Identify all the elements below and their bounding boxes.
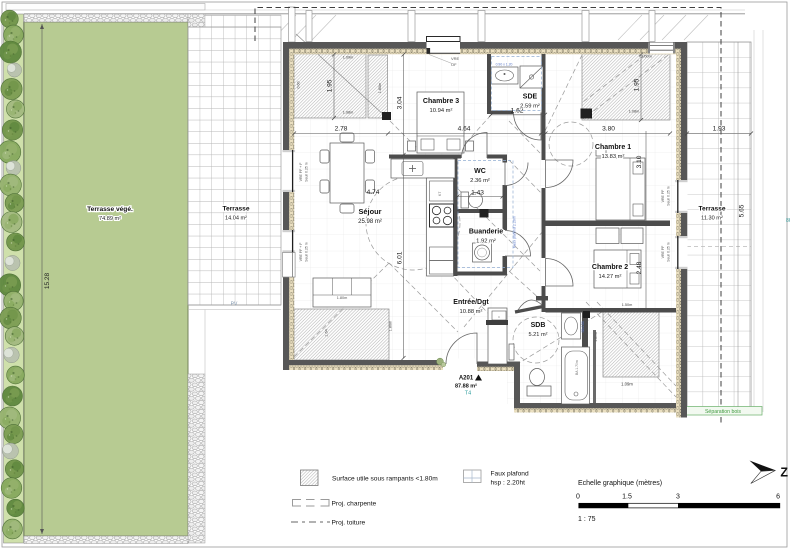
svg-text:1.93: 1.93 (713, 126, 726, 133)
svg-text:Faux plafond 2.20m: Faux plafond 2.20m (513, 216, 517, 248)
svg-text:25.98 m²: 25.98 m² (358, 219, 382, 225)
svg-text:2.59 m²: 2.59 m² (520, 104, 540, 110)
svg-text:Terrasse végé.: Terrasse végé. (87, 206, 133, 213)
svg-text:1.08m: 1.08m (629, 110, 640, 114)
svg-text:1.43: 1.43 (471, 190, 484, 197)
svg-text:Chambre 2: Chambre 2 (592, 264, 628, 271)
svg-text:Entrée/Dgt: Entrée/Dgt (453, 299, 489, 306)
svg-text:4.64: 4.64 (458, 126, 471, 133)
svg-text:1.09m: 1.09m (621, 382, 633, 387)
svg-text:1 : 75: 1 : 75 (578, 516, 596, 523)
svg-text:SB 0.60: SB 0.60 (581, 321, 585, 333)
svg-text:Surface utile sous rampants <1: Surface utile sous rampants <1.80m (332, 476, 438, 483)
svg-text:Proj. charpente: Proj. charpente (332, 501, 377, 508)
svg-text:SDE: SDE (523, 94, 538, 101)
svg-text:Terrasse: Terrasse (222, 206, 249, 213)
svg-text:Buanderie: Buanderie (469, 229, 503, 236)
svg-text:1.80m: 1.80m (389, 321, 393, 332)
svg-text:A201: A201 (459, 376, 474, 382)
svg-text:2.78: 2.78 (335, 126, 348, 133)
svg-text:14.04 m²: 14.04 m² (225, 216, 247, 222)
svg-text:1.5: 1.5 (622, 494, 632, 501)
svg-text:Chambre 3: Chambre 3 (423, 98, 459, 105)
svg-text:BA 1.70m: BA 1.70m (575, 360, 579, 375)
svg-text:Terrasse: Terrasse (698, 206, 725, 213)
svg-text:5.21 m²: 5.21 m² (529, 332, 548, 338)
svg-text:1.98m: 1.98m (343, 111, 354, 115)
svg-text:Séparation bois: Séparation bois (705, 409, 741, 415)
svg-text:2.48: 2.48 (636, 261, 643, 274)
svg-text:Seuil 0.25 m: Seuil 0.25 m (667, 242, 671, 262)
svg-text:10.94 m²: 10.94 m² (430, 108, 453, 114)
svg-text:1.09m: 1.09m (343, 56, 354, 60)
svg-text:1.80m: 1.80m (378, 83, 382, 94)
svg-text:1.00m: 1.00m (641, 55, 652, 59)
svg-text:VRE: VRE (451, 56, 460, 61)
svg-text:6.01: 6.01 (397, 251, 404, 264)
svg-text:hsp : 2.20ht: hsp : 2.20ht (491, 480, 526, 487)
svg-text:0.60: 0.60 (297, 82, 301, 89)
svg-text:1.95: 1.95 (634, 78, 641, 91)
svg-text:87.88 m²: 87.88 m² (455, 383, 477, 390)
svg-text:Seuil 0.25 m: Seuil 0.25 m (667, 186, 671, 206)
svg-text:PV: PV (231, 302, 238, 308)
svg-text:0.90 x 1.20: 0.90 x 1.20 (496, 63, 513, 67)
svg-text:WC: WC (474, 168, 486, 175)
svg-text:Z: Z (780, 466, 788, 480)
svg-text:1.95: 1.95 (327, 79, 334, 92)
svg-text:2.36 m²: 2.36 m² (470, 178, 490, 184)
svg-text:1.50m: 1.50m (622, 303, 633, 307)
svg-text:VRE PF + F: VRE PF + F (299, 243, 303, 262)
svg-text:Proj. toiture: Proj. toiture (332, 520, 366, 527)
svg-text:Séjour: Séjour (359, 207, 382, 216)
svg-text:Seuil 0.25 m: Seuil 0.25 m (305, 162, 309, 182)
svg-text:0: 0 (576, 494, 580, 501)
svg-text:Echelle graphique (mètres): Echelle graphique (mètres) (578, 480, 662, 487)
svg-text:10.88 m²: 10.88 m² (460, 309, 483, 315)
svg-text:15.28: 15.28 (44, 272, 51, 289)
svg-text:3.04: 3.04 (397, 96, 404, 109)
svg-text:14.27 m²: 14.27 m² (599, 274, 622, 280)
svg-text:OF: OF (451, 62, 457, 67)
svg-text:13.83 m²: 13.83 m² (602, 154, 625, 160)
svg-text:74.89 m²: 74.89 m² (99, 216, 121, 222)
svg-text:86: 86 (786, 218, 790, 224)
svg-text:6: 6 (776, 494, 780, 501)
svg-text:1.64: 1.64 (325, 329, 329, 336)
svg-text:SDB: SDB (531, 322, 546, 329)
svg-text:VRE PF + F: VRE PF + F (299, 163, 303, 182)
svg-text:Chambre 1: Chambre 1 (595, 144, 631, 151)
svg-text:3.80: 3.80 (602, 126, 615, 133)
svg-text:1.92 m²: 1.92 m² (476, 239, 496, 245)
svg-text:⌂: ⌂ (498, 315, 500, 319)
svg-text:5.65: 5.65 (739, 204, 746, 217)
svg-text:T4: T4 (465, 391, 471, 397)
svg-text:Seuil 0.25 m: Seuil 0.25 m (305, 242, 309, 262)
svg-text:1.80m: 1.80m (337, 296, 348, 300)
svg-text:3: 3 (676, 494, 680, 501)
svg-text:VRE PF: VRE PF (661, 190, 665, 203)
svg-text:4.74: 4.74 (367, 189, 380, 196)
svg-text:11.30 m²: 11.30 m² (701, 216, 723, 222)
svg-text:VRE PF: VRE PF (661, 246, 665, 259)
svg-text:3.10: 3.10 (636, 155, 643, 168)
svg-text:1.80m: 1.80m (594, 332, 598, 342)
svg-text:Faux plafond: Faux plafond (491, 471, 529, 478)
